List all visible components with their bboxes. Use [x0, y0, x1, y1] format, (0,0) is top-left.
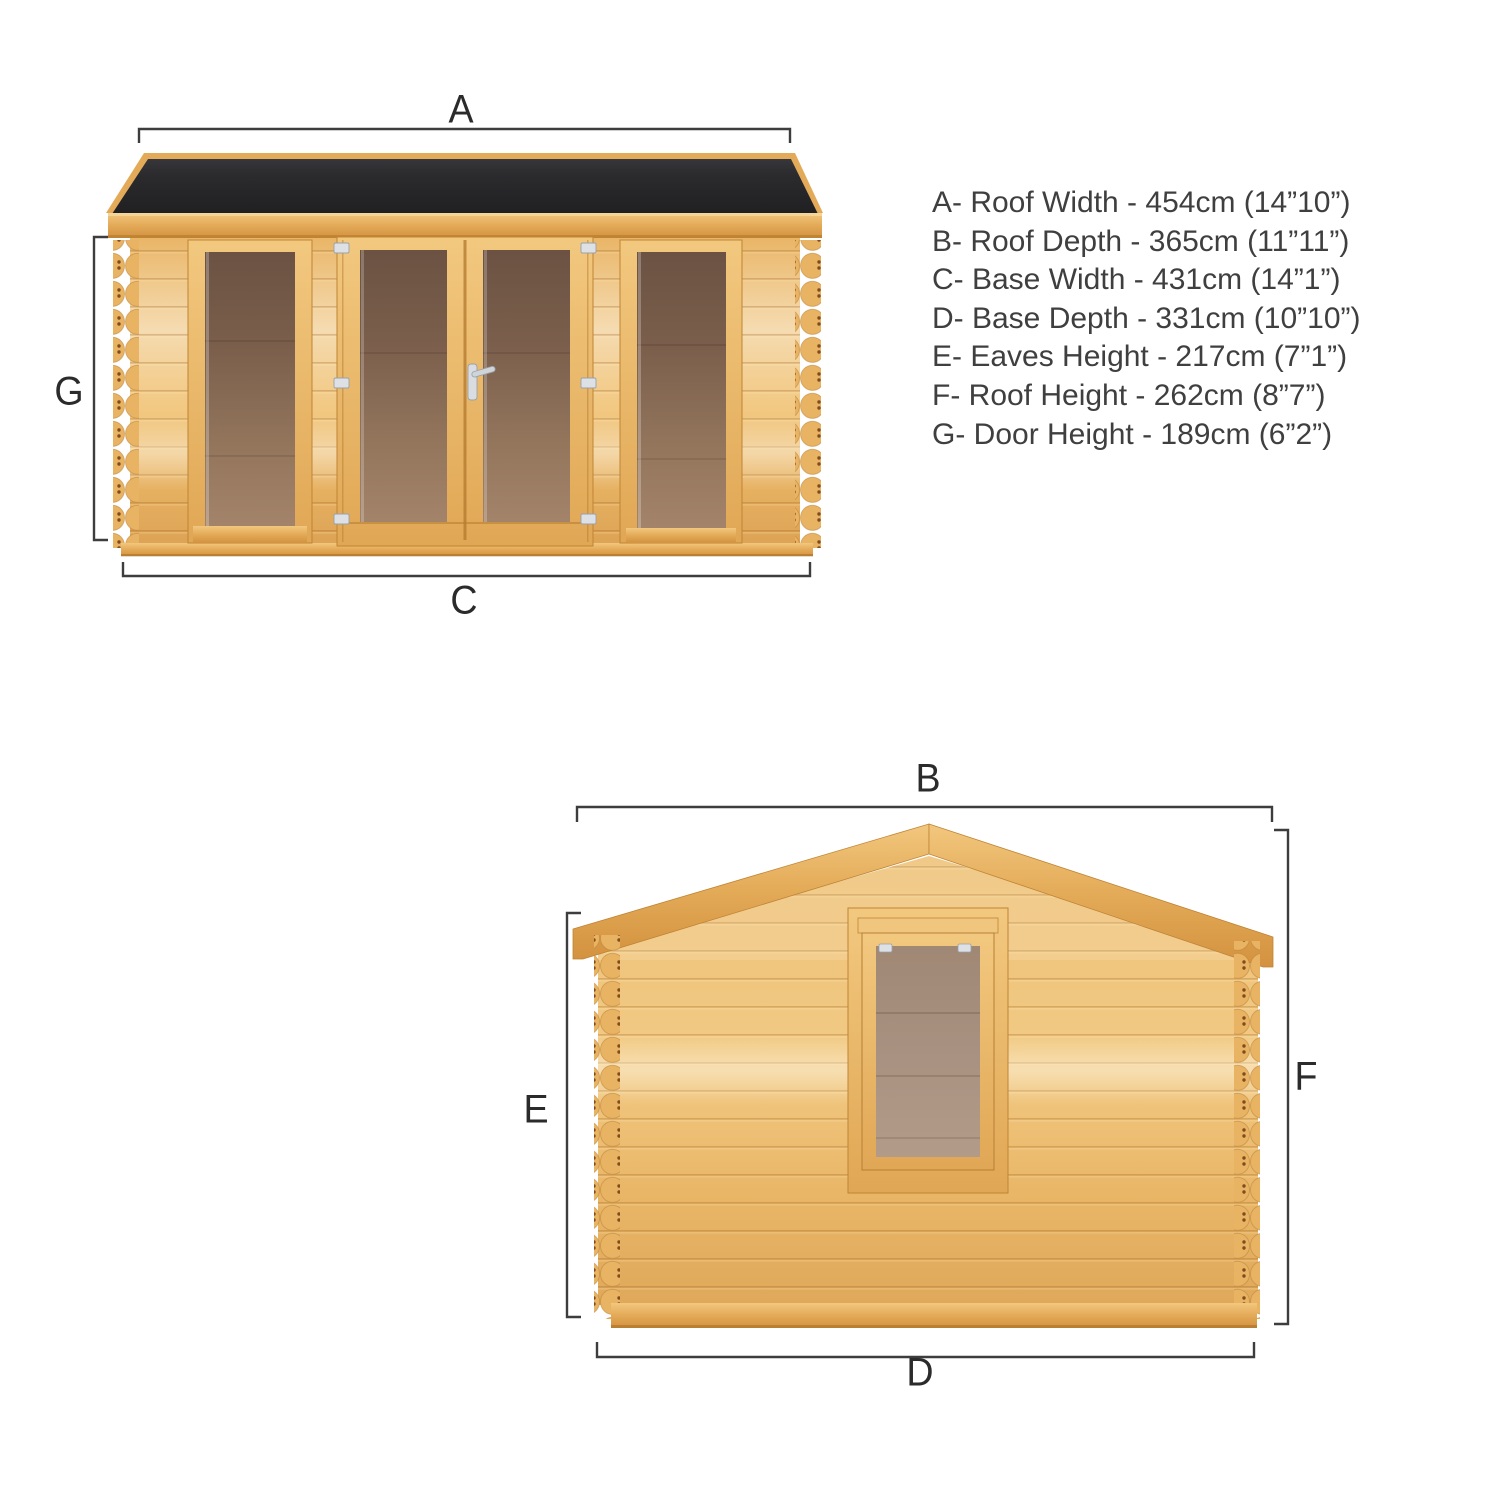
hinge-icon [879, 944, 892, 952]
spec-item-roof-width: A- Roof Width - 454cm (14”10”) [932, 184, 1361, 223]
spec-item-base-width: C- Base Width - 431cm (14”1”) [932, 261, 1361, 300]
front-window-right [620, 240, 742, 543]
diagram-canvas: A C G B E F D A- Roof Width - 454cm (14”… [0, 0, 1500, 1500]
hinge-icon [334, 378, 349, 388]
dim-label-door-height: G [54, 370, 83, 415]
door-left-stile-line [342, 240, 344, 542]
dim-label-base-depth: D [906, 1351, 933, 1396]
front-window-right-glass [637, 252, 726, 528]
front-window-left-glass [205, 252, 295, 526]
front-window-left [188, 240, 312, 543]
front-right-log-ends [795, 240, 821, 548]
glazing-line [205, 340, 295, 342]
dim-label-roof-height: F [1295, 1055, 1318, 1100]
spec-item-door-height: G- Door Height - 189cm (6”2”) [932, 416, 1361, 455]
hinge-icon [958, 944, 971, 952]
dim-line-eaves-height [567, 913, 581, 1317]
glazing-line [876, 1075, 980, 1077]
front-fascia-board [108, 213, 822, 238]
glass-highlight [206, 252, 209, 526]
dim-label-roof-width: A [448, 88, 473, 133]
front-left-log-ends [113, 240, 139, 548]
glazing-line [637, 344, 726, 346]
glass-highlight [361, 250, 364, 522]
side-window [848, 908, 1008, 1193]
spec-list: A- Roof Width - 454cm (14”10”) B- Roof D… [932, 184, 1361, 454]
door-left-glass [360, 250, 447, 522]
door-bottom-rail-line [342, 522, 588, 524]
spec-item-eaves-height: E- Eaves Height - 217cm (7”1”) [932, 338, 1361, 377]
side-base-rail [611, 1303, 1257, 1328]
front-base-rail-shadow [121, 554, 813, 557]
dim-label-base-width: C [450, 579, 477, 624]
dim-line-door-height [94, 237, 108, 540]
hinge-icon [581, 378, 596, 388]
dim-line-roof-depth [577, 807, 1272, 822]
glass-highlight [638, 252, 641, 528]
dim-label-eaves-height: E [523, 1088, 548, 1133]
front-window-right-sill [626, 528, 736, 543]
glazing-line [876, 1137, 980, 1139]
front-double-door [334, 237, 596, 546]
glazing-line [637, 458, 726, 460]
side-base-rail-shadow [611, 1325, 1257, 1328]
hinge-icon [334, 243, 349, 253]
side-window-glass [876, 946, 980, 1157]
side-window-lintel [858, 918, 998, 933]
front-window-left-sill [193, 526, 307, 543]
front-fascia-highlight [108, 213, 822, 216]
spec-item-roof-depth: B- Roof Depth - 365cm (11”11”) [932, 223, 1361, 262]
dim-line-roof-height [1274, 830, 1288, 1324]
hinge-icon [334, 514, 349, 524]
spec-item-base-depth: D- Base Depth - 331cm (10”10”) [932, 300, 1361, 339]
front-elevation [94, 129, 823, 576]
front-roof-felt [112, 159, 818, 214]
hinge-icon [581, 243, 596, 253]
spec-item-roof-height: F- Roof Height - 262cm (8”7”) [932, 377, 1361, 416]
dim-line-base-width [123, 562, 810, 576]
glass-highlight [484, 250, 487, 522]
dim-label-roof-depth: B [915, 757, 940, 802]
glazing-line [360, 352, 447, 354]
door-right-glass [483, 250, 570, 522]
glazing-line [483, 352, 570, 354]
glazing-line [205, 455, 295, 457]
door-right-stile-line [587, 240, 589, 542]
glazing-line [876, 1012, 980, 1014]
door-meeting-stile [464, 240, 467, 540]
side-left-log-ends [594, 935, 620, 1319]
side-right-log-ends [1234, 941, 1260, 1319]
hinge-icon [581, 514, 596, 524]
